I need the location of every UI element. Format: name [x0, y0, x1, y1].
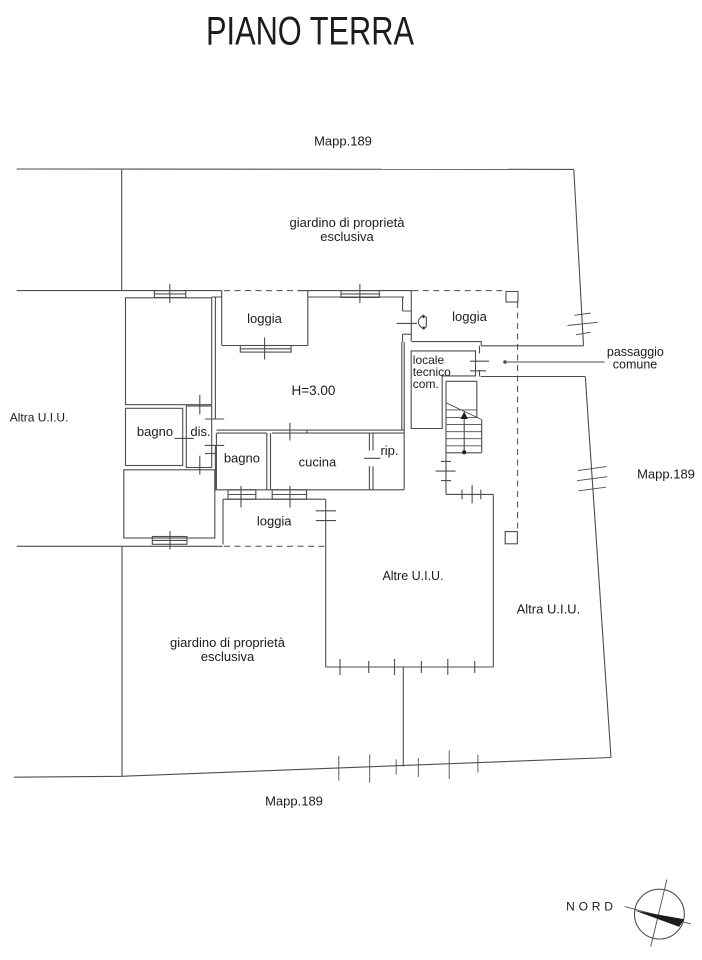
svg-text:esclusiva: esclusiva: [201, 649, 255, 664]
svg-text:loggia: loggia: [452, 309, 487, 324]
svg-text:Mapp.189: Mapp.189: [314, 134, 372, 149]
svg-text:H=3.00: H=3.00: [292, 383, 336, 398]
svg-text:cucina: cucina: [299, 455, 337, 470]
svg-text:loggia: loggia: [247, 311, 282, 326]
svg-text:Mapp.189: Mapp.189: [265, 794, 323, 809]
svg-text:Altra U.I.U.: Altra U.I.U.: [10, 411, 69, 425]
svg-text:loggia: loggia: [257, 514, 292, 529]
svg-text:bagno: bagno: [137, 424, 173, 439]
svg-text:dis.: dis.: [190, 424, 210, 439]
svg-text:Altra U.I.U.: Altra U.I.U.: [517, 602, 581, 617]
svg-text:Mapp.189: Mapp.189: [637, 467, 695, 482]
svg-text:PIANO TERRA: PIANO TERRA: [206, 9, 414, 53]
svg-text:esclusiva: esclusiva: [320, 229, 374, 244]
svg-text:comune: comune: [613, 358, 658, 372]
svg-text:rip.: rip.: [380, 443, 398, 458]
svg-text:NORD: NORD: [566, 900, 617, 914]
svg-text:giardino di proprietà: giardino di proprietà: [170, 635, 286, 650]
svg-text:bagno: bagno: [224, 451, 260, 466]
svg-text:giardino di proprietà: giardino di proprietà: [290, 215, 406, 230]
svg-text:Altre U.I.U.: Altre U.I.U.: [382, 569, 443, 583]
svg-text:com.: com.: [413, 377, 439, 391]
